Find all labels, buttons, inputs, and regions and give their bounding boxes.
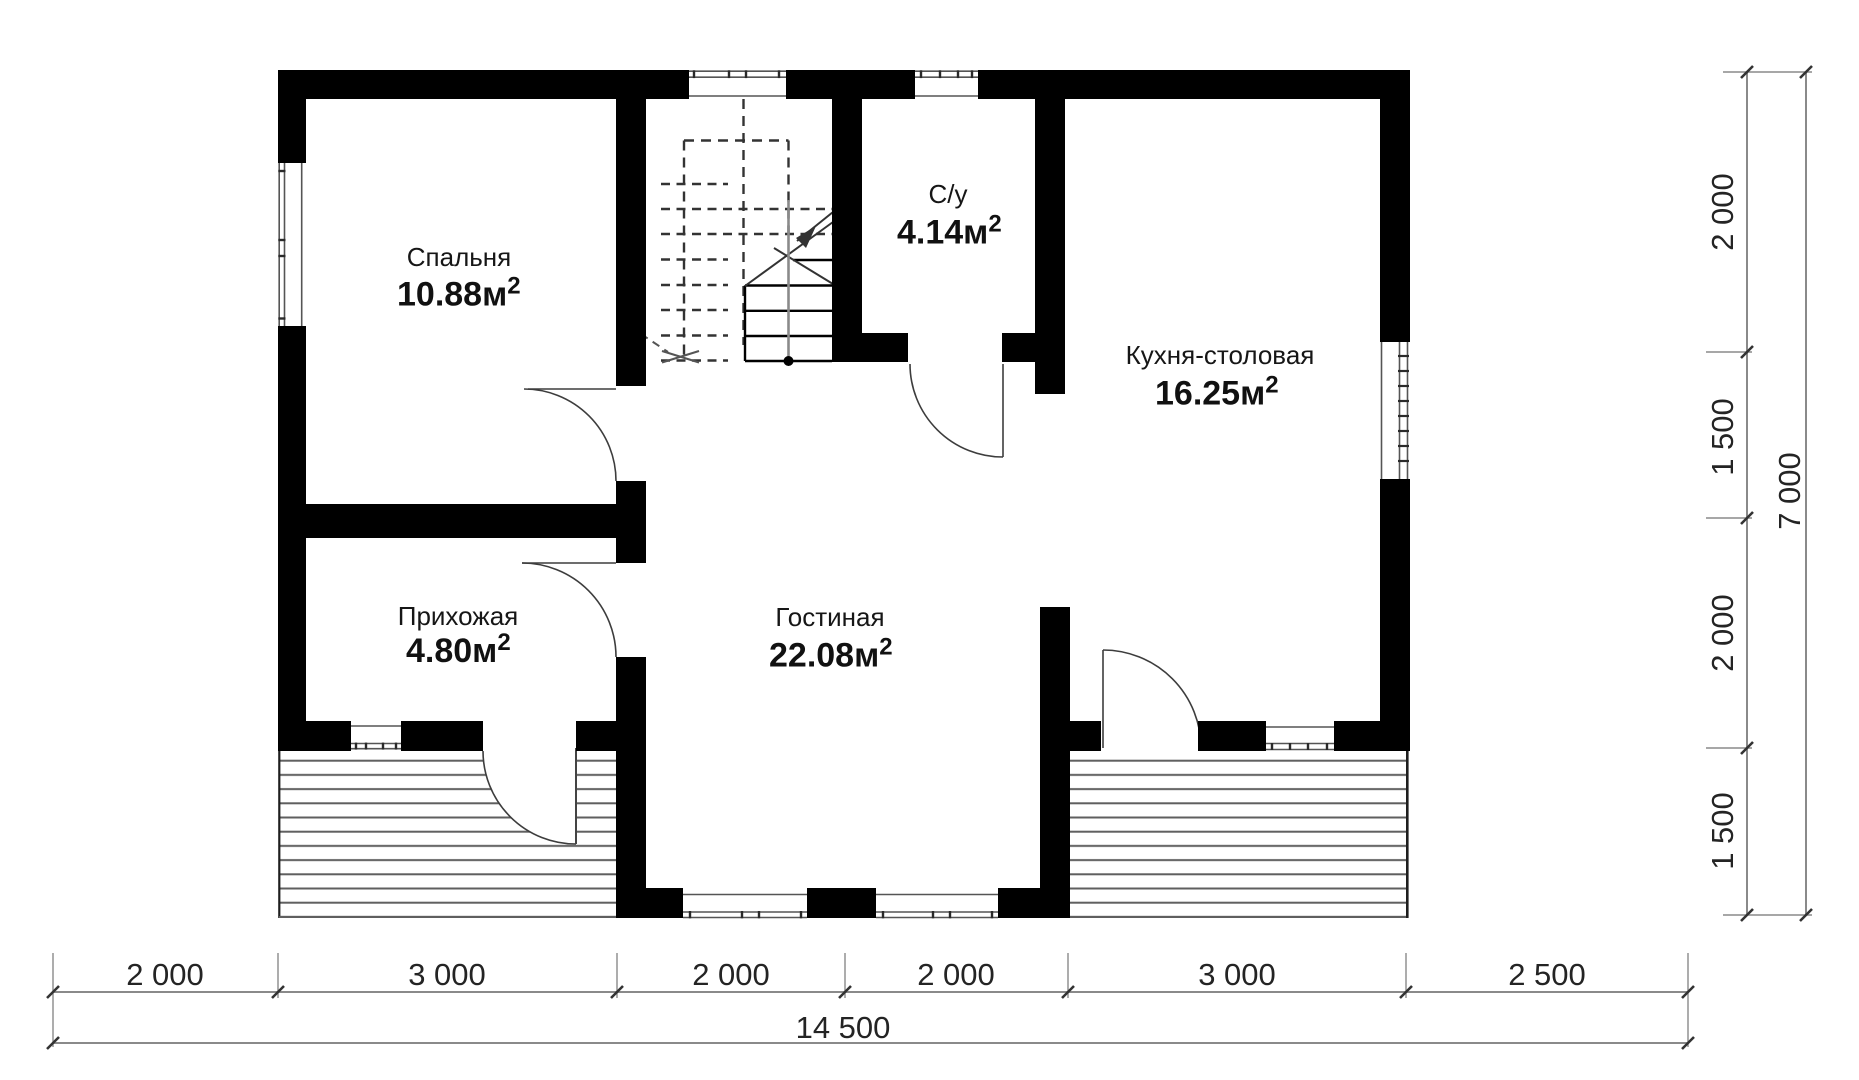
svg-text:2 000: 2 000 [1705, 594, 1740, 672]
svg-text:Прихожая: Прихожая [398, 601, 518, 631]
svg-text:2 000: 2 000 [1705, 173, 1740, 251]
svg-text:3 000: 3 000 [408, 957, 486, 992]
svg-text:2 000: 2 000 [126, 957, 204, 992]
svg-text:3 000: 3 000 [1198, 957, 1276, 992]
svg-text:14 500: 14 500 [796, 1010, 891, 1045]
svg-text:7 000: 7 000 [1772, 452, 1807, 530]
svg-text:10.88м2: 10.88м2 [397, 273, 521, 314]
svg-text:2 000: 2 000 [917, 957, 995, 992]
svg-text:16.25м2: 16.25м2 [1155, 372, 1279, 413]
svg-text:Спальня: Спальня [407, 242, 511, 272]
svg-text:Кухня-столовая: Кухня-столовая [1126, 340, 1315, 370]
svg-text:22.08м2: 22.08м2 [769, 634, 893, 675]
svg-text:2 000: 2 000 [692, 957, 770, 992]
svg-text:1 500: 1 500 [1705, 398, 1740, 476]
svg-text:1 500: 1 500 [1705, 792, 1740, 870]
svg-text:4.14м2: 4.14м2 [897, 211, 1002, 252]
svg-text:2 500: 2 500 [1508, 957, 1586, 992]
svg-text:4.80м2: 4.80м2 [406, 629, 511, 670]
svg-text:Гостиная: Гостиная [775, 602, 884, 632]
svg-text:С/у: С/у [929, 179, 968, 209]
